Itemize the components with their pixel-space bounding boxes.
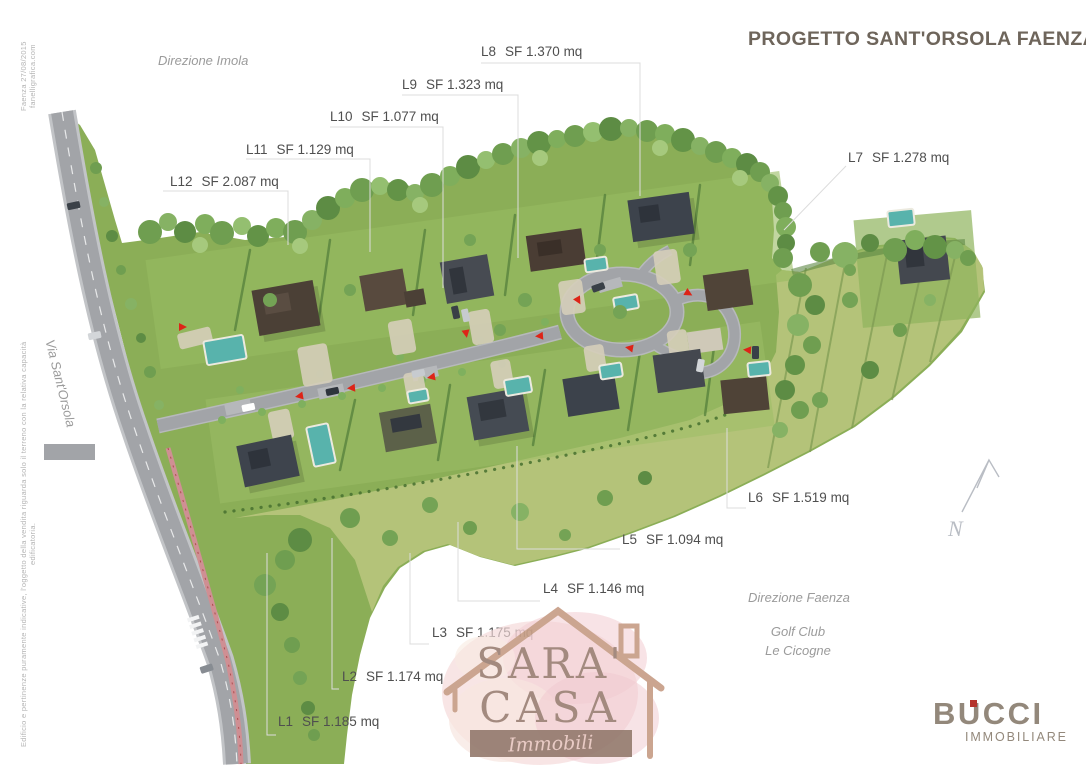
site-plan-page: N PROGETTO SANT'ORSOLA FAENZA Direzione … xyxy=(0,0,1086,768)
lot-area: SF 1.278 mq xyxy=(872,150,949,165)
lot-area: SF 1.146 mq xyxy=(567,581,644,596)
golf-club-label: Golf Club Le Cicogne xyxy=(733,622,863,660)
house xyxy=(720,376,769,415)
lot-code: L1 xyxy=(278,714,293,729)
lot-code: L4 xyxy=(543,581,558,596)
north-letter: N xyxy=(947,516,964,541)
lot-code: L2 xyxy=(342,669,357,684)
lot-label-l6: L6SF 1.519 mq xyxy=(748,490,849,505)
bucci-logo-dot xyxy=(970,700,977,707)
lot-label-l1: L1SF 1.185 mq xyxy=(278,714,379,729)
house xyxy=(627,192,694,242)
house xyxy=(359,268,409,311)
lot-code: L11 xyxy=(246,142,268,157)
lot-area: SF 2.087 mq xyxy=(202,174,279,189)
lot-code: L5 xyxy=(622,532,637,547)
bucci-logo-name: BUCCI xyxy=(933,698,1068,729)
lot-area: SF 1.129 mq xyxy=(277,142,354,157)
lot-label-l2: L2SF 1.174 mq xyxy=(342,669,443,684)
lot-area: SF 1.370 mq xyxy=(505,44,582,59)
page-title: PROGETTO SANT'ORSOLA FAENZA xyxy=(748,28,1086,51)
lot-code: L3 xyxy=(432,625,447,640)
golf-club-line1: Golf Club xyxy=(733,622,863,641)
golf-club-line2: Le Cicogne xyxy=(733,641,863,660)
lot-area: SF 1.323 mq xyxy=(426,77,503,92)
lot-label-l3: L3SF 1.175 mq xyxy=(432,625,533,640)
lot-code: L9 xyxy=(402,77,417,92)
lot-code: L10 xyxy=(330,109,353,124)
house xyxy=(440,254,495,304)
direction-imola-label: Direzione Imola xyxy=(158,53,248,68)
lot-area: SF 1.175 mq xyxy=(456,625,533,640)
lot-label-l8: L8SF 1.370 mq xyxy=(481,44,582,59)
lot-label-l10: L10SF 1.077 mq xyxy=(330,109,439,124)
lot-code: L8 xyxy=(481,44,496,59)
lot-area: SF 1.519 mq xyxy=(772,490,849,505)
bucci-logo-subtitle: IMMOBILIARE xyxy=(933,730,1068,744)
north-arrow-icon: N xyxy=(947,460,999,541)
house xyxy=(404,288,426,307)
bucci-logo: BUCCI IMMOBILIARE xyxy=(933,698,1068,744)
house xyxy=(703,269,754,311)
lot-code: L7 xyxy=(848,150,863,165)
lot-label-l5: L5SF 1.094 mq xyxy=(622,532,723,547)
disclaimer-text: Edificio e pertinenze puramente indicati… xyxy=(19,330,37,758)
lot-code: L12 xyxy=(170,174,193,189)
lot-area: SF 1.077 mq xyxy=(362,109,439,124)
plan-info-credit: Faenza 27/08/2015 fanelligrafica.com xyxy=(19,15,37,137)
lot-label-l7: L7SF 1.278 mq xyxy=(848,150,949,165)
lot-area: SF 1.094 mq xyxy=(646,532,723,547)
lot-area: SF 1.174 mq xyxy=(366,669,443,684)
lot-label-l4: L4SF 1.146 mq xyxy=(543,581,644,596)
lot-label-l9: L9SF 1.323 mq xyxy=(402,77,503,92)
lot-area: SF 1.185 mq xyxy=(302,714,379,729)
lot-label-l12: L12SF 2.087 mq xyxy=(170,174,279,189)
lot-label-l11: L11SF 1.129 mq xyxy=(246,142,354,157)
site-plan-image: N xyxy=(0,0,1086,768)
lot-code: L6 xyxy=(748,490,763,505)
direction-faenza-label: Direzione Faenza xyxy=(748,590,850,605)
